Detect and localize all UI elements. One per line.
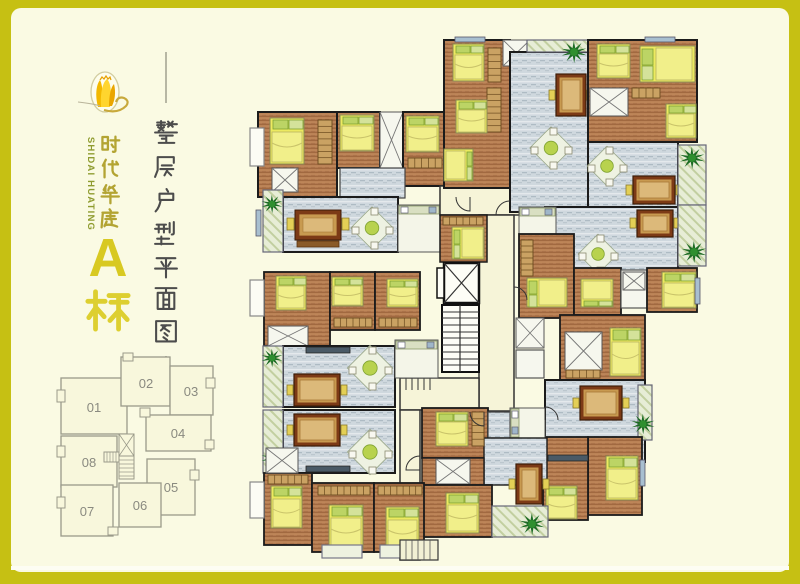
svg-text:03: 03: [184, 384, 198, 399]
svg-text:06: 06: [133, 498, 147, 513]
svg-text:01: 01: [87, 400, 101, 415]
svg-text:05: 05: [164, 480, 178, 495]
svg-text:04: 04: [171, 426, 185, 441]
svg-text:02: 02: [139, 376, 153, 391]
svg-text:SHIDAI HUATING: SHIDAI HUATING: [85, 137, 96, 231]
svg-text:08: 08: [82, 455, 96, 470]
svg-text:A: A: [89, 228, 128, 288]
svg-text:07: 07: [80, 504, 94, 519]
